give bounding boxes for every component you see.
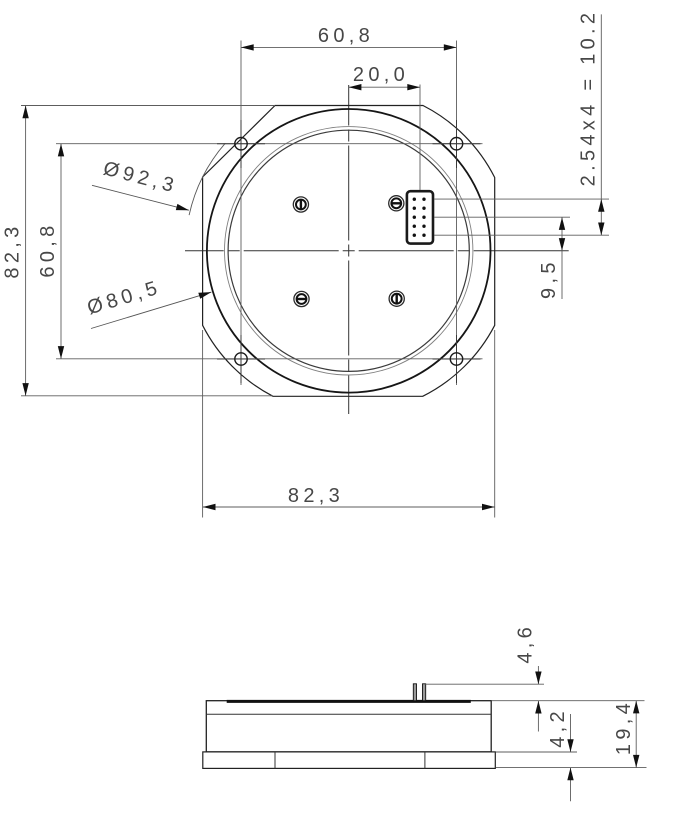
svg-text:20,0: 20,0	[353, 64, 409, 86]
svg-text:60,8: 60,8	[37, 221, 59, 277]
svg-text:9,5: 9,5	[538, 258, 560, 299]
svg-text:60,8: 60,8	[318, 25, 374, 47]
svg-text:19,4: 19,4	[613, 699, 635, 755]
svg-text:82,3: 82,3	[2, 222, 24, 278]
svg-text:82,3: 82,3	[288, 485, 344, 507]
svg-text:4,6: 4,6	[514, 623, 536, 664]
svg-text:2.54x4 = 10.2: 2.54x4 = 10.2	[578, 9, 600, 187]
svg-text:4,2: 4,2	[547, 707, 569, 748]
